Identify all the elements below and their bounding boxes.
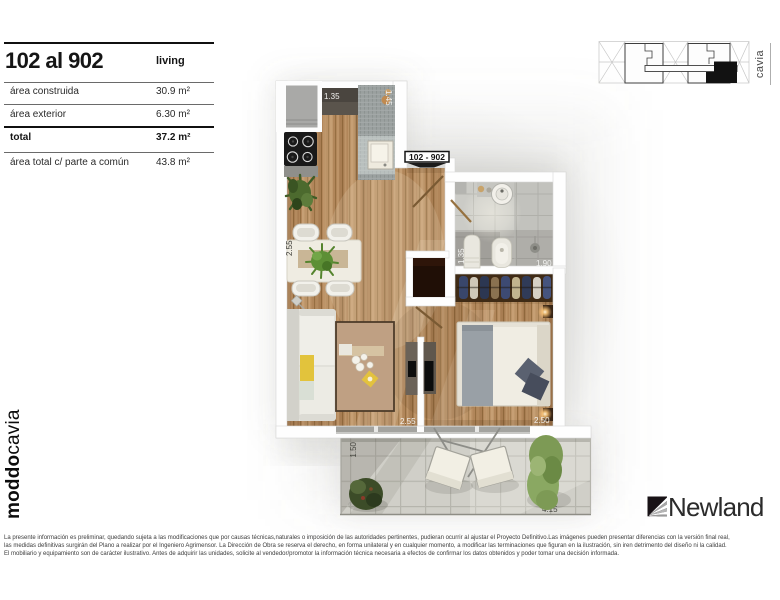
svg-text:1.35: 1.35 (324, 92, 340, 101)
svg-text:1.35: 1.35 (457, 248, 466, 264)
svg-text:2.55: 2.55 (285, 240, 294, 256)
svg-text:1.90: 1.90 (536, 259, 552, 268)
svg-text:1.45: 1.45 (384, 90, 393, 106)
svg-text:102 - 902: 102 - 902 (409, 152, 445, 162)
svg-text:2.50: 2.50 (534, 416, 550, 425)
svg-text:2.55: 2.55 (400, 417, 416, 426)
svg-text:cavia: cavia (754, 50, 766, 79)
svg-text:Newland: Newland (668, 492, 764, 522)
svg-text:1.50: 1.50 (349, 441, 358, 457)
